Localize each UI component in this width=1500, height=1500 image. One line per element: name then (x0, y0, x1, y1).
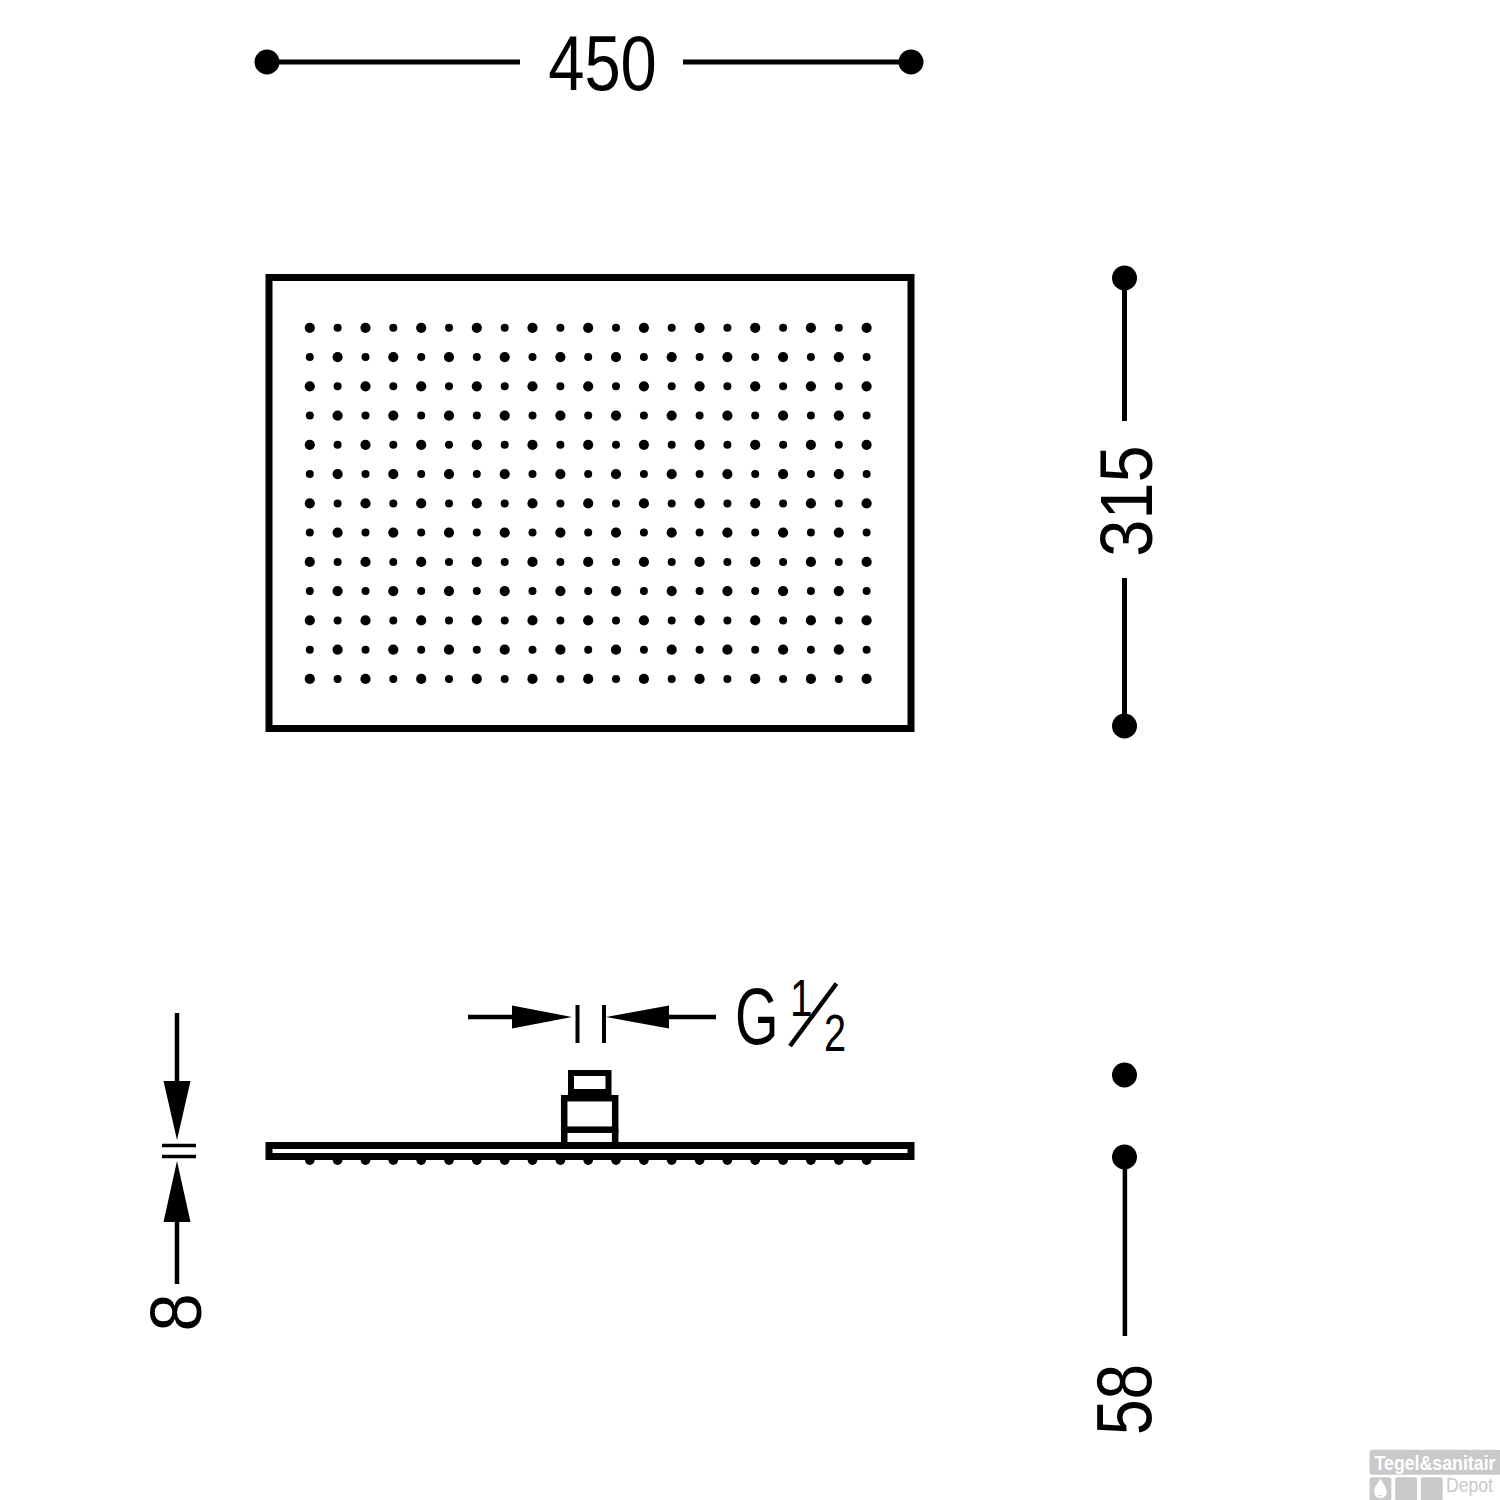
svg-text:G: G (735, 971, 779, 1061)
svg-text:2: 2 (824, 1005, 846, 1062)
svg-text:450: 450 (548, 19, 657, 106)
svg-text:8: 8 (135, 1293, 216, 1331)
svg-text:58: 58 (1080, 1364, 1167, 1435)
svg-text:315: 315 (1084, 445, 1167, 556)
svg-text:Tegel&sanitair: Tegel&sanitair (1375, 1452, 1496, 1474)
svg-text:Depot: Depot (1446, 1473, 1493, 1496)
